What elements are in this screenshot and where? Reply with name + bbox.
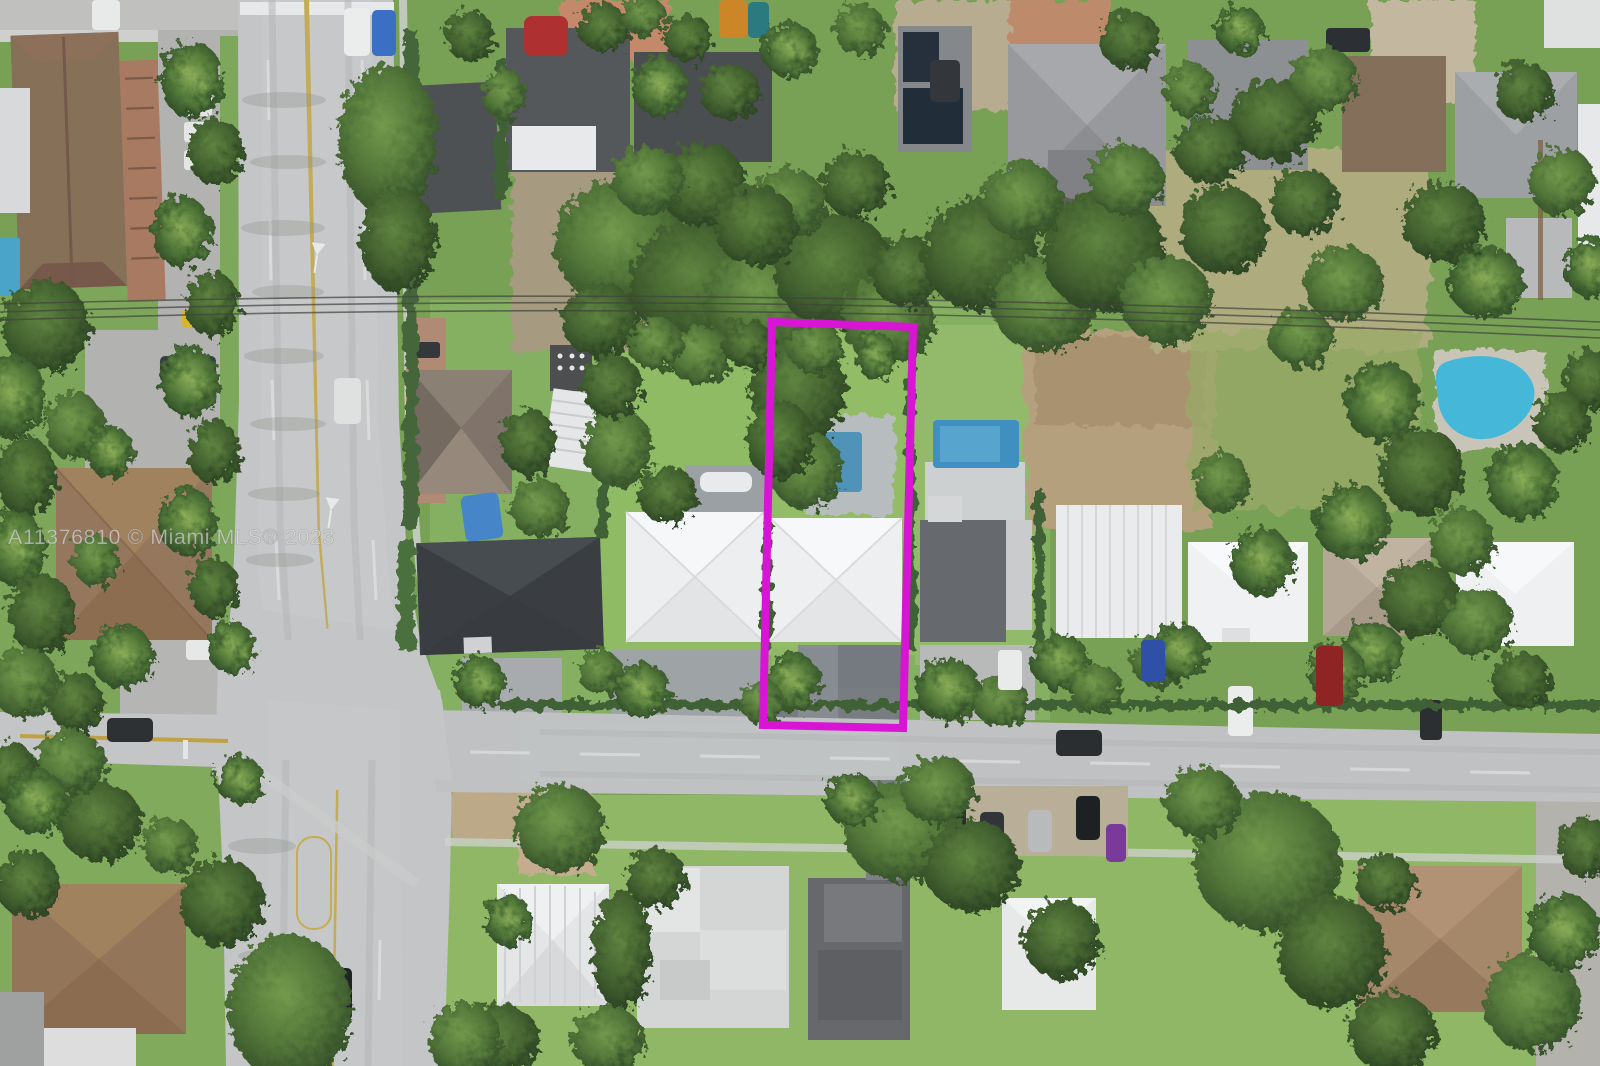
svg-text:A11376810 © Miami MLS® 2023: A11376810 © Miami MLS® 2023 (8, 525, 335, 549)
